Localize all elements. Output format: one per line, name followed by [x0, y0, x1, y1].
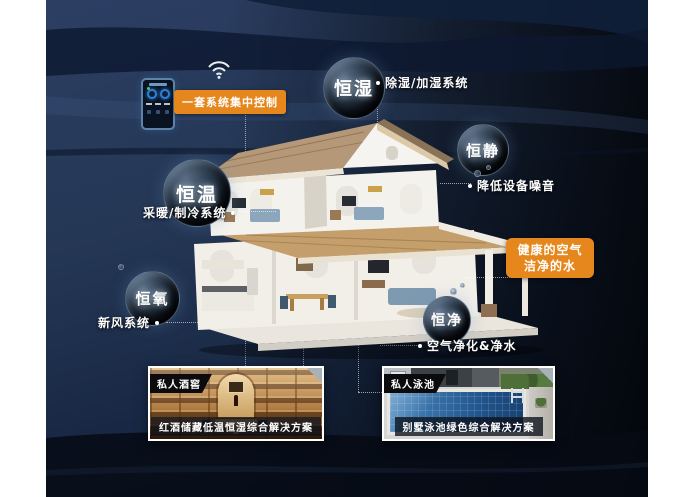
wine-cellar-photo: 私人酒窖 红酒储藏低温恒湿综合解决方案 — [150, 368, 322, 439]
connector-dot — [155, 321, 159, 325]
bubble-trail-dot — [118, 264, 124, 270]
status-led — [147, 87, 150, 90]
wifi-icon — [206, 58, 232, 79]
label-fresh-air-system-text: 新风系统 — [98, 314, 150, 331]
phone-menu-icons — [145, 110, 171, 114]
pool-inset: 私人泳池 别墅泳池绿色综合解决方案 — [382, 366, 555, 441]
label-fresh-air-system: 新风系统 — [98, 314, 159, 331]
connector-dot — [418, 344, 422, 348]
label-air-water-purification: 空气净化&净水 — [418, 337, 516, 354]
label-heating-cooling-system: 采暖/制冷系统 — [143, 204, 235, 221]
pool-ladder-icon — [511, 388, 524, 403]
bubble-constant-purity-label: 恒净 — [431, 310, 463, 330]
bubble-trail-dot — [486, 165, 491, 170]
pool-caption: 别墅泳池绿色综合解决方案 — [395, 417, 543, 436]
bubble-constant-oxygen-label: 恒氧 — [135, 288, 169, 309]
pool-plant-pot — [535, 398, 547, 408]
bubble-constant-quiet: 恒静 — [457, 124, 509, 176]
phone-readouts — [145, 103, 171, 105]
label-heating-cooling-system-text: 采暖/制冷系统 — [143, 204, 226, 221]
fold-corner-icon — [538, 368, 553, 383]
wine-cellar-tag: 私人酒窖 — [150, 374, 212, 393]
bubble-constant-quiet-label: 恒静 — [466, 140, 500, 161]
wine-cellar-inset: 私人酒窖 红酒储藏低温恒湿综合解决方案 — [148, 366, 324, 441]
bubble-constant-humidity-label: 恒湿 — [334, 75, 374, 101]
fold-corner-icon — [307, 368, 322, 383]
wine-picture-frame — [228, 381, 244, 393]
healthy-air-water-box: 健康的空气 洁净的水 — [506, 238, 594, 278]
poster-canvas: 一套系统集中控制 恒湿 恒静 恒温 恒氧 恒净 — [0, 0, 700, 497]
dial-knob-icon — [147, 89, 157, 99]
label-dehumidify-system-text: 除湿/加湿系统 — [385, 74, 468, 91]
label-air-water-purification-text: 空气净化&净水 — [427, 337, 516, 354]
pool-door — [446, 370, 458, 385]
connector-dot — [231, 211, 235, 215]
connector-dot — [468, 184, 472, 188]
pool-tag: 私人泳池 — [384, 374, 446, 393]
dial-knob-icon — [160, 89, 170, 99]
connector-dot — [376, 81, 380, 85]
healthy-air-line: 健康的空气 — [513, 242, 587, 258]
label-dehumidify-system: 除湿/加湿系统 — [376, 74, 468, 91]
label-noise-reduction: 降低设备噪音 — [468, 177, 555, 194]
smart-controller-phone — [141, 78, 175, 130]
clean-water-line: 洁净的水 — [513, 258, 587, 274]
wine-bottle — [234, 395, 238, 406]
artboard: 一套系统集中控制 恒湿 恒静 恒温 恒氧 恒净 — [46, 0, 648, 497]
bubble-trail-dot — [460, 283, 465, 288]
phone-dial-knobs — [145, 89, 171, 99]
central-control-badge: 一套系统集中控制 — [174, 90, 286, 114]
bubble-trail-dot — [450, 288, 457, 295]
pool-photo: 私人泳池 别墅泳池绿色综合解决方案 — [384, 368, 553, 439]
bubble-constant-temperature-label: 恒温 — [176, 180, 218, 207]
label-noise-reduction-text: 降低设备噪音 — [477, 177, 555, 194]
wine-cellar-caption: 红酒储藏低温恒湿综合解决方案 — [151, 417, 321, 436]
phone-titlebar — [149, 83, 167, 86]
bubble-trail-dot — [474, 170, 481, 177]
